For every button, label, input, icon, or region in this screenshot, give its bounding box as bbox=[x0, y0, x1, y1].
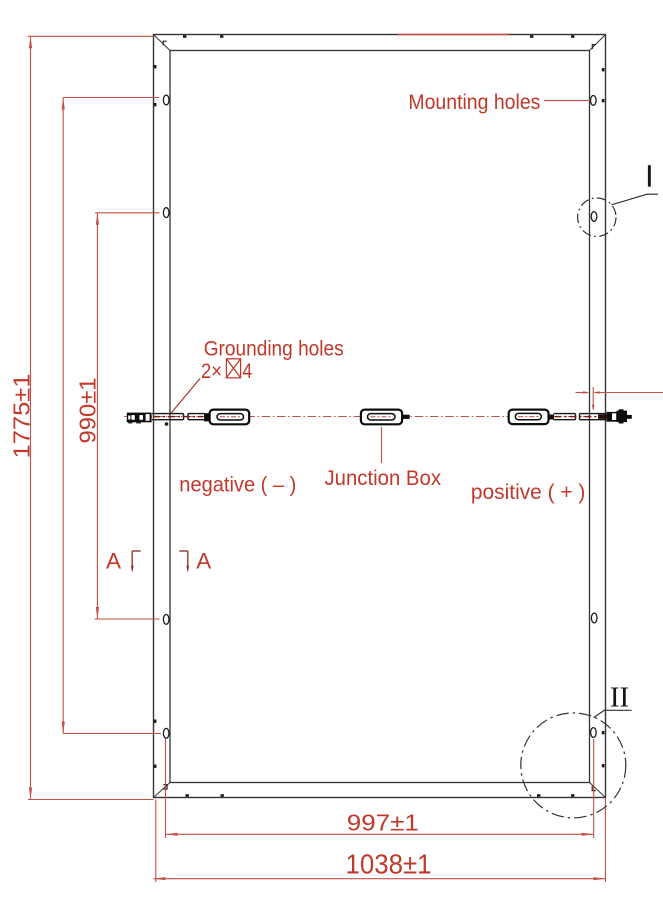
svg-text:positive ( + ): positive ( + ) bbox=[471, 480, 586, 504]
svg-text:Grounding holes: Grounding holes bbox=[204, 337, 344, 361]
svg-text:997±1: 997±1 bbox=[347, 810, 419, 836]
svg-text:1038±1: 1038±1 bbox=[346, 849, 432, 880]
svg-text:1775±1: 1775±1 bbox=[9, 374, 35, 459]
svg-text:A: A bbox=[196, 549, 211, 574]
svg-text:negative ( – ): negative ( – ) bbox=[179, 473, 296, 497]
svg-text:II: II bbox=[610, 682, 629, 714]
svg-text:Junction Box: Junction Box bbox=[325, 466, 442, 490]
svg-text:A: A bbox=[106, 549, 121, 574]
svg-text:2×: 2× bbox=[201, 360, 222, 383]
svg-text:990±1: 990±1 bbox=[75, 378, 101, 444]
svg-text:4: 4 bbox=[242, 360, 252, 383]
svg-text:Mounting holes: Mounting holes bbox=[408, 90, 540, 114]
